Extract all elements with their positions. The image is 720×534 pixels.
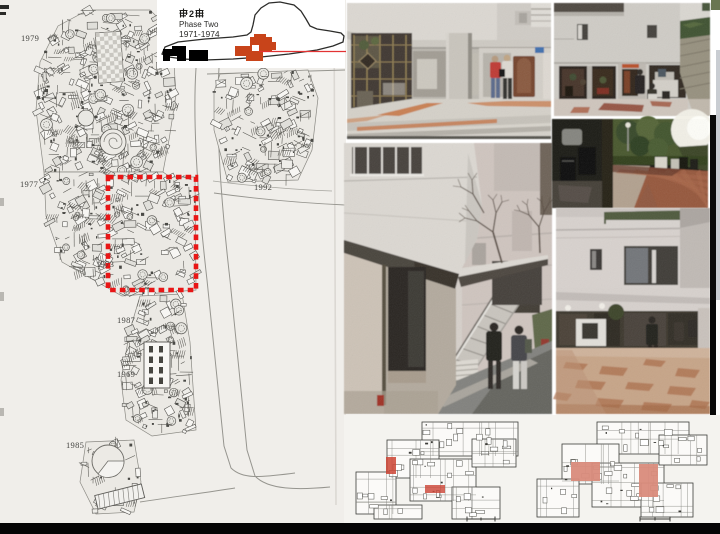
- svg-text:1979: 1979: [21, 33, 39, 43]
- svg-text:1992: 1992: [254, 182, 272, 192]
- svg-text:1985: 1985: [66, 440, 84, 450]
- svg-text:2: 2: [189, 9, 194, 19]
- svg-text:1971-1974: 1971-1974: [179, 29, 220, 39]
- svg-text:1969: 1969: [117, 369, 135, 379]
- svg-text:1977: 1977: [20, 179, 38, 189]
- svg-text:1987: 1987: [117, 315, 135, 325]
- svg-text:Phase Two: Phase Two: [179, 20, 219, 29]
- svg-text:1973: 1973: [96, 259, 114, 269]
